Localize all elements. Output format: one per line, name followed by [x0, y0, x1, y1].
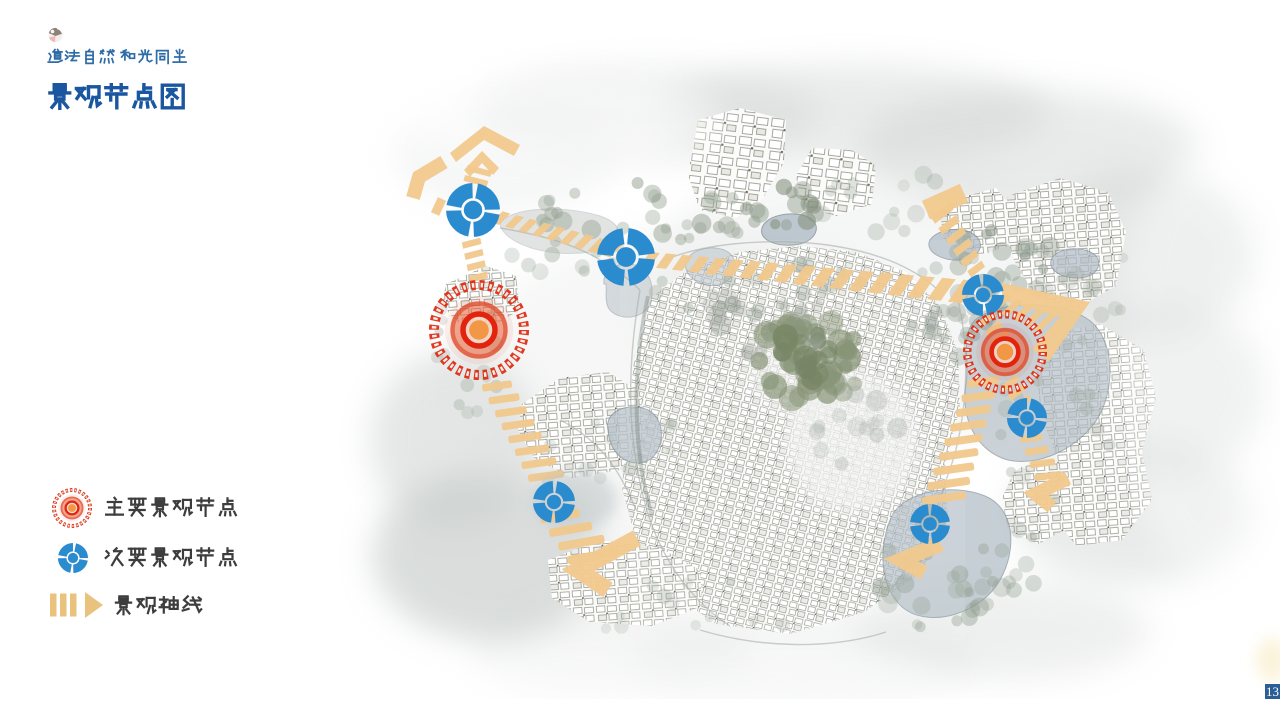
svg-text:13: 13	[1266, 684, 1279, 699]
